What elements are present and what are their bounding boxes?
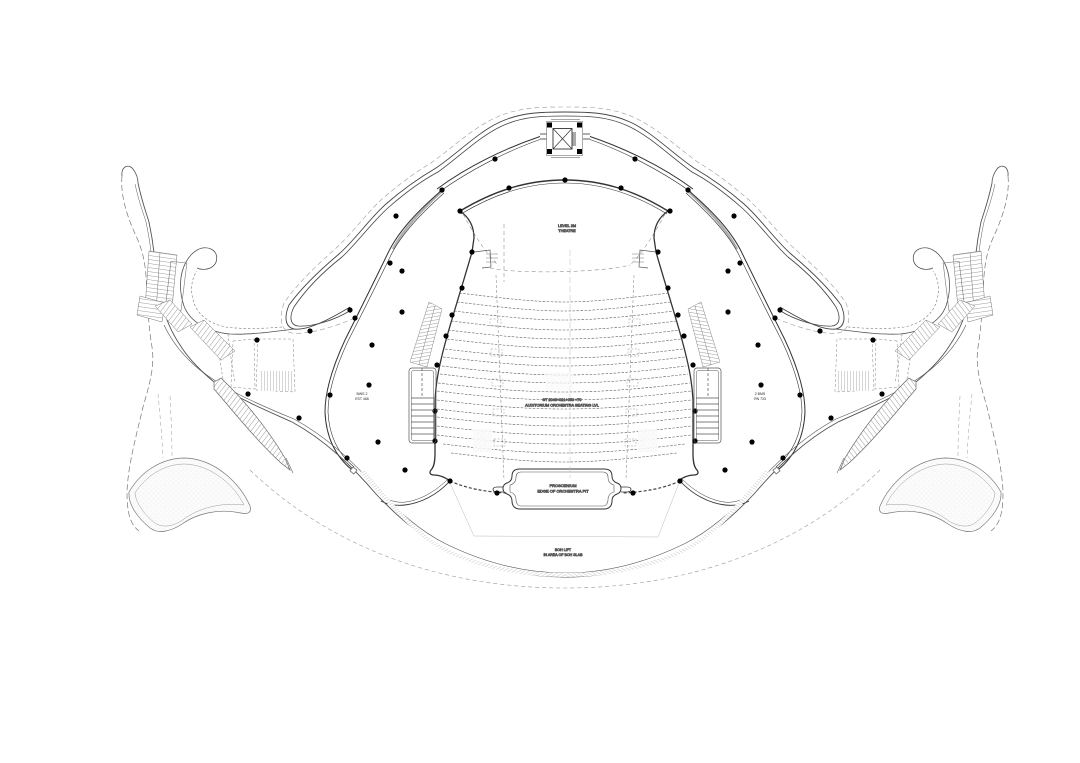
svg-text:BWS 2: BWS 2 xyxy=(357,392,368,396)
svg-text:BOH LIFT: BOH LIFT xyxy=(555,548,572,552)
svg-text:AUDITORIUM ORCHESTRA SEATING: AUDITORIUM ORCHESTRA SEATING LVL xyxy=(525,404,599,408)
svg-text:LEVEL 2M: LEVEL 2M xyxy=(558,224,576,228)
svg-text:2 BMS: 2 BMS xyxy=(755,392,766,396)
svg-text:ST 2046+021+050 +70: ST 2046+021+050 +70 xyxy=(543,398,582,402)
svg-text:RN 733: RN 733 xyxy=(754,397,766,401)
svg-text:IN AREA OF BOH SLAB: IN AREA OF BOH SLAB xyxy=(544,553,584,557)
svg-text:EST 466: EST 466 xyxy=(355,397,369,401)
svg-text:PROSCENIUM: PROSCENIUM xyxy=(549,483,576,488)
svg-text:THEATRE: THEATRE xyxy=(558,229,576,233)
svg-text:EDGE OF ORCHESTRA PIT: EDGE OF ORCHESTRA PIT xyxy=(537,489,589,494)
